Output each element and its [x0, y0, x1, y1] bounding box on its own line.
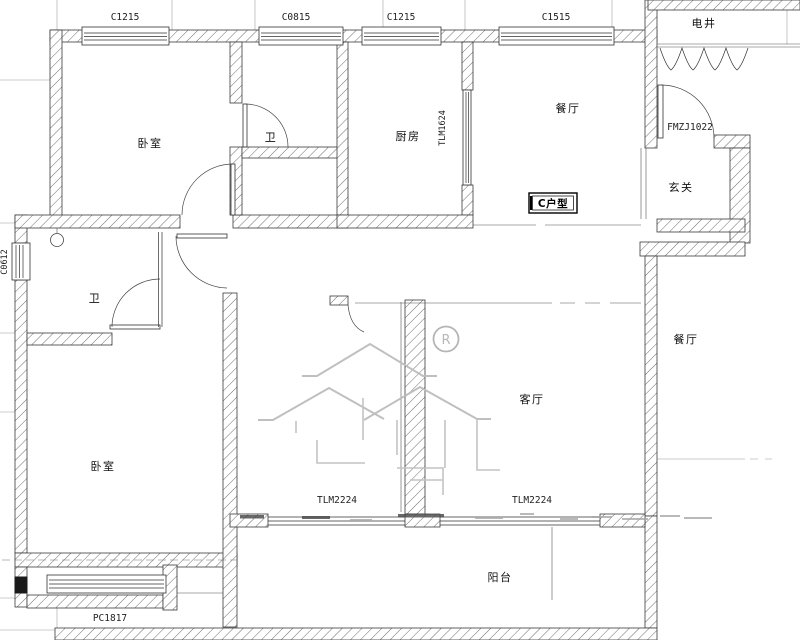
windows	[12, 27, 614, 593]
door-leaf-entry	[658, 85, 663, 138]
door-label-kitchen-sliding: TLM1624	[438, 110, 448, 146]
room-label-balcony: 阳台	[488, 570, 513, 584]
window-label-top-4: C1515	[542, 12, 571, 23]
sliding-door-kitchen	[463, 90, 471, 185]
room-label-dining-top: 餐厅	[556, 101, 581, 115]
room-label-foyer: 玄关	[669, 180, 694, 194]
door-leaf-bath-mid	[110, 325, 160, 329]
unit-type-label: C户型	[538, 197, 568, 210]
room-label-bedroom-top: 卧室	[138, 136, 163, 150]
floor-plan-page: R 卧室 卫 厨房 餐厅 电井 玄关 卫 卧室 客厅 餐厅 阳台 C户型 C12…	[0, 0, 800, 640]
door-leaf-bedroom-top	[231, 164, 235, 215]
room-label-bath-top: 卫	[265, 131, 278, 144]
window-label-side-left: C0612	[0, 249, 10, 275]
room-label-electric-shaft: 电井	[692, 16, 717, 30]
code-labels: C1215 C0815 C1215 C1515 PC1817 C0612 FMZ…	[0, 12, 713, 624]
room-label-kitchen: 厨房	[396, 130, 421, 143]
room-label-living: 客厅	[520, 392, 545, 406]
floor-plan-canvas: R 卧室 卫 厨房 餐厅 电井 玄关 卫 卧室 客厅 餐厅 阳台 C户型 C12…	[0, 0, 800, 640]
room-label-bath-mid: 卫	[89, 292, 102, 305]
window-label-bay: PC1817	[93, 613, 127, 624]
room-label-bedroom-bottom: 卧室	[91, 459, 116, 473]
door-label-entry: FMZJ1022	[667, 122, 713, 133]
walls	[15, 0, 800, 640]
grid-lines	[0, 0, 787, 640]
door-label-balcony-sliding-right: TLM2224	[512, 495, 552, 506]
watermark-logo: R	[258, 327, 500, 496]
entry-canopy-sawtooth	[660, 48, 748, 70]
axis-bubble	[51, 234, 64, 247]
room-labels: 卧室 卫 厨房 餐厅 电井 玄关 卫 卧室 客厅 餐厅 阳台	[89, 16, 717, 584]
room-label-dining-right: 餐厅	[674, 332, 699, 346]
door-label-balcony-sliding-left: TLM2224	[317, 495, 357, 506]
registered-mark-letter: R	[441, 333, 450, 348]
window-label-top-3: C1215	[387, 12, 416, 23]
window-label-top-1: C1215	[111, 12, 140, 23]
door-leaf-bath-top	[243, 104, 247, 147]
unit-type-tag: C户型	[529, 193, 577, 213]
door-leaf-hall	[177, 234, 227, 238]
window-label-top-2: C0815	[282, 12, 311, 23]
